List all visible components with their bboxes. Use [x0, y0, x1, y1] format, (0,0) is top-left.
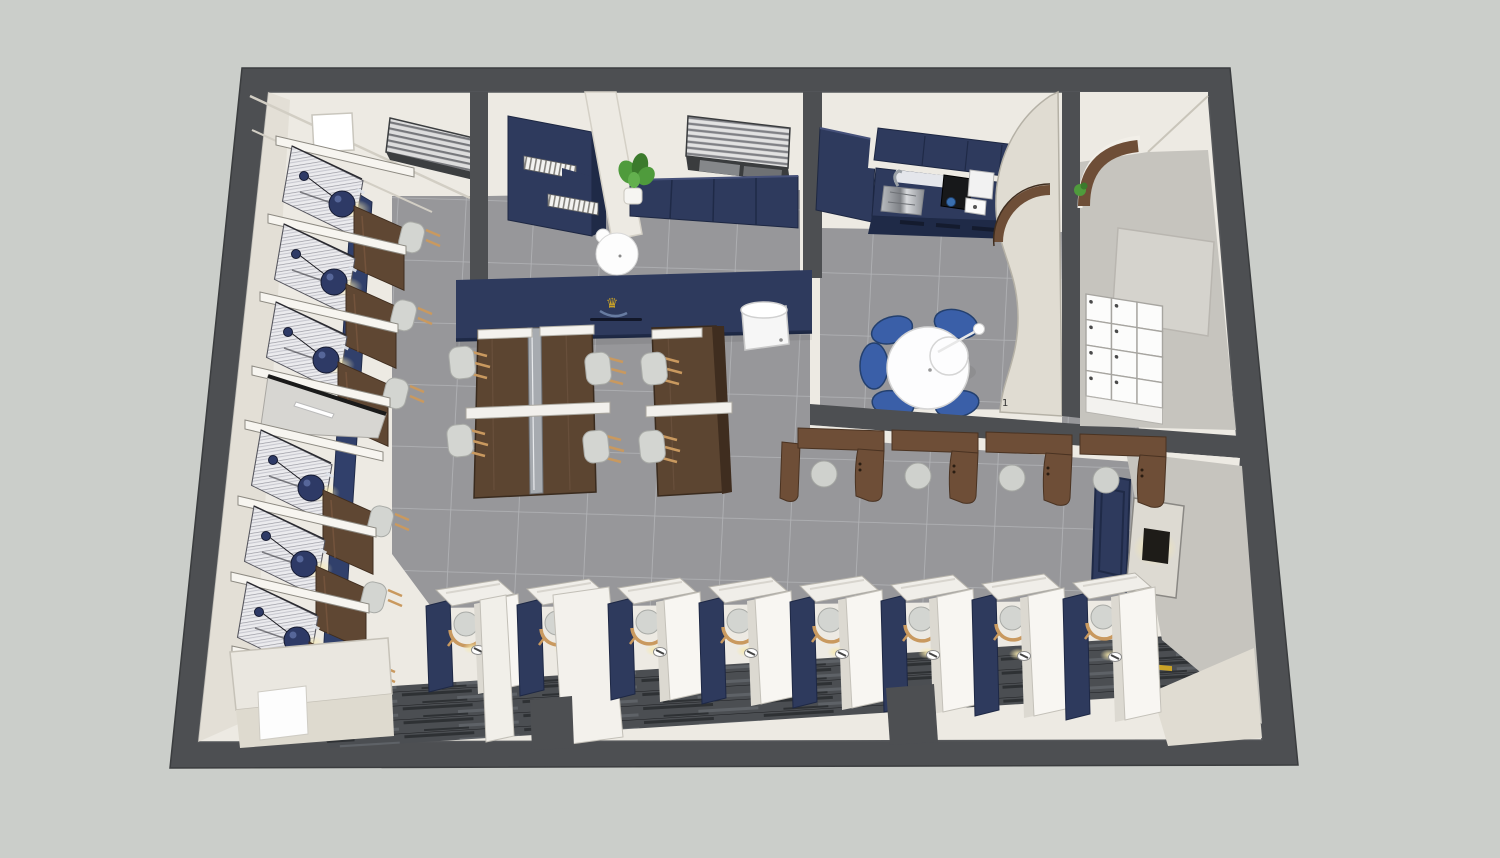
bench-arm: [855, 449, 884, 501]
brand-logo-icon: ♛: [606, 296, 619, 312]
lamp-small-sphere: [269, 456, 278, 465]
art-canvas: [1142, 528, 1170, 564]
wishbone-seat: [909, 607, 933, 631]
bench-table: [1080, 434, 1166, 457]
bench-bolt: [1141, 469, 1144, 472]
appliance-white: [968, 170, 994, 199]
carrel-front-panel: [1119, 587, 1161, 720]
privacy-screen: [478, 328, 532, 339]
wall-kitchen-east: [1062, 92, 1080, 418]
cabinet-door: [258, 686, 308, 740]
bench-arm: [949, 451, 978, 503]
lamp-sphere: [298, 475, 324, 501]
lamp-highlight: [304, 480, 311, 487]
locker-cell: [1086, 345, 1112, 375]
wishbone-seat: [454, 612, 478, 636]
carrel-navy-panel: [790, 596, 817, 708]
locker-cell: [1112, 298, 1138, 328]
coffee-cup: [947, 198, 956, 207]
bench-end-arm: [780, 442, 800, 501]
lamp-highlight: [335, 196, 342, 203]
locker-cell: [1137, 353, 1163, 383]
floorplan-render: ♛: [0, 0, 1500, 858]
bench-seat: [1093, 467, 1119, 493]
lamp-sphere: [329, 191, 355, 217]
wall-lounge-west: [470, 92, 488, 284]
carrel-navy-panel: [608, 598, 635, 700]
lamp-highlight: [327, 274, 334, 281]
dining-tables: [446, 325, 732, 498]
bench-seat: [999, 465, 1025, 491]
wall-stub: [530, 696, 574, 750]
chair-seat: [584, 351, 612, 385]
locker-cell: [1086, 320, 1112, 350]
locker-grid: [1086, 294, 1163, 424]
chair-seat: [638, 429, 666, 463]
carrel-navy-panel: [972, 594, 999, 716]
locker-cell: [1112, 349, 1138, 379]
chair-seat: [446, 423, 474, 457]
locker-cubbies: [1086, 294, 1163, 424]
bench-arm: [1043, 453, 1072, 505]
locker-cell: [1086, 294, 1112, 324]
wishbone-seat: [636, 610, 660, 634]
wall-stub: [886, 684, 938, 745]
lamp-sphere: [291, 551, 317, 577]
bench-bolt: [953, 465, 956, 468]
round-table-small: [930, 337, 968, 375]
bench-table: [892, 430, 978, 453]
lamp-small-sphere: [262, 532, 271, 541]
bench-bolt: [859, 469, 862, 472]
lamp-sphere: [321, 269, 347, 295]
lamp-highlight: [297, 556, 304, 563]
chair-seat: [448, 345, 476, 379]
bench-bolt: [953, 471, 956, 474]
lamp-small-sphere: [292, 250, 301, 259]
chair-seat: [582, 429, 610, 463]
lamp-small-sphere: [300, 172, 309, 181]
bench-table: [798, 428, 884, 451]
storage-cabinets: [230, 638, 394, 748]
carrel-navy-panel: [699, 597, 726, 704]
locker-cell: [1086, 371, 1112, 401]
wishbone-seat: [818, 608, 842, 632]
chair-seat: [640, 351, 668, 385]
carrel-navy-panel: [1063, 593, 1090, 720]
lamp-small-sphere: [284, 328, 293, 337]
locker-cell: [1112, 324, 1138, 354]
blue-chair: [860, 343, 888, 389]
bench-bolt: [859, 463, 862, 466]
lamp-highlight: [319, 352, 326, 359]
lamp-highlight: [290, 632, 297, 639]
room-label: 1: [1002, 398, 1008, 409]
brand-text-smudge: [590, 318, 642, 321]
locker-cell: [1137, 302, 1163, 332]
carrel-navy-panel: [517, 599, 544, 696]
arc-lamp-shade: [974, 324, 985, 335]
cabinet-island: [816, 128, 876, 222]
bench-table: [986, 432, 1072, 455]
3d-viewport[interactable]: ♛: [0, 0, 1500, 858]
locker-cell: [1137, 328, 1163, 358]
bench-bolt: [1141, 475, 1144, 478]
bench-bolt: [1047, 467, 1050, 470]
privacy-screen: [652, 328, 702, 339]
bench-seat: [811, 461, 837, 487]
bench-arm: [1137, 455, 1166, 507]
privacy-screen: [540, 325, 594, 336]
locker-cell: [1137, 379, 1163, 409]
water-dispenser: [741, 302, 789, 350]
locker-cell: [1112, 375, 1138, 405]
lamp-small-sphere: [255, 608, 264, 617]
wishbone-seat: [727, 609, 751, 633]
lamp-sphere: [313, 347, 339, 373]
bench-seat: [905, 463, 931, 489]
bench-bolt: [1047, 473, 1050, 476]
